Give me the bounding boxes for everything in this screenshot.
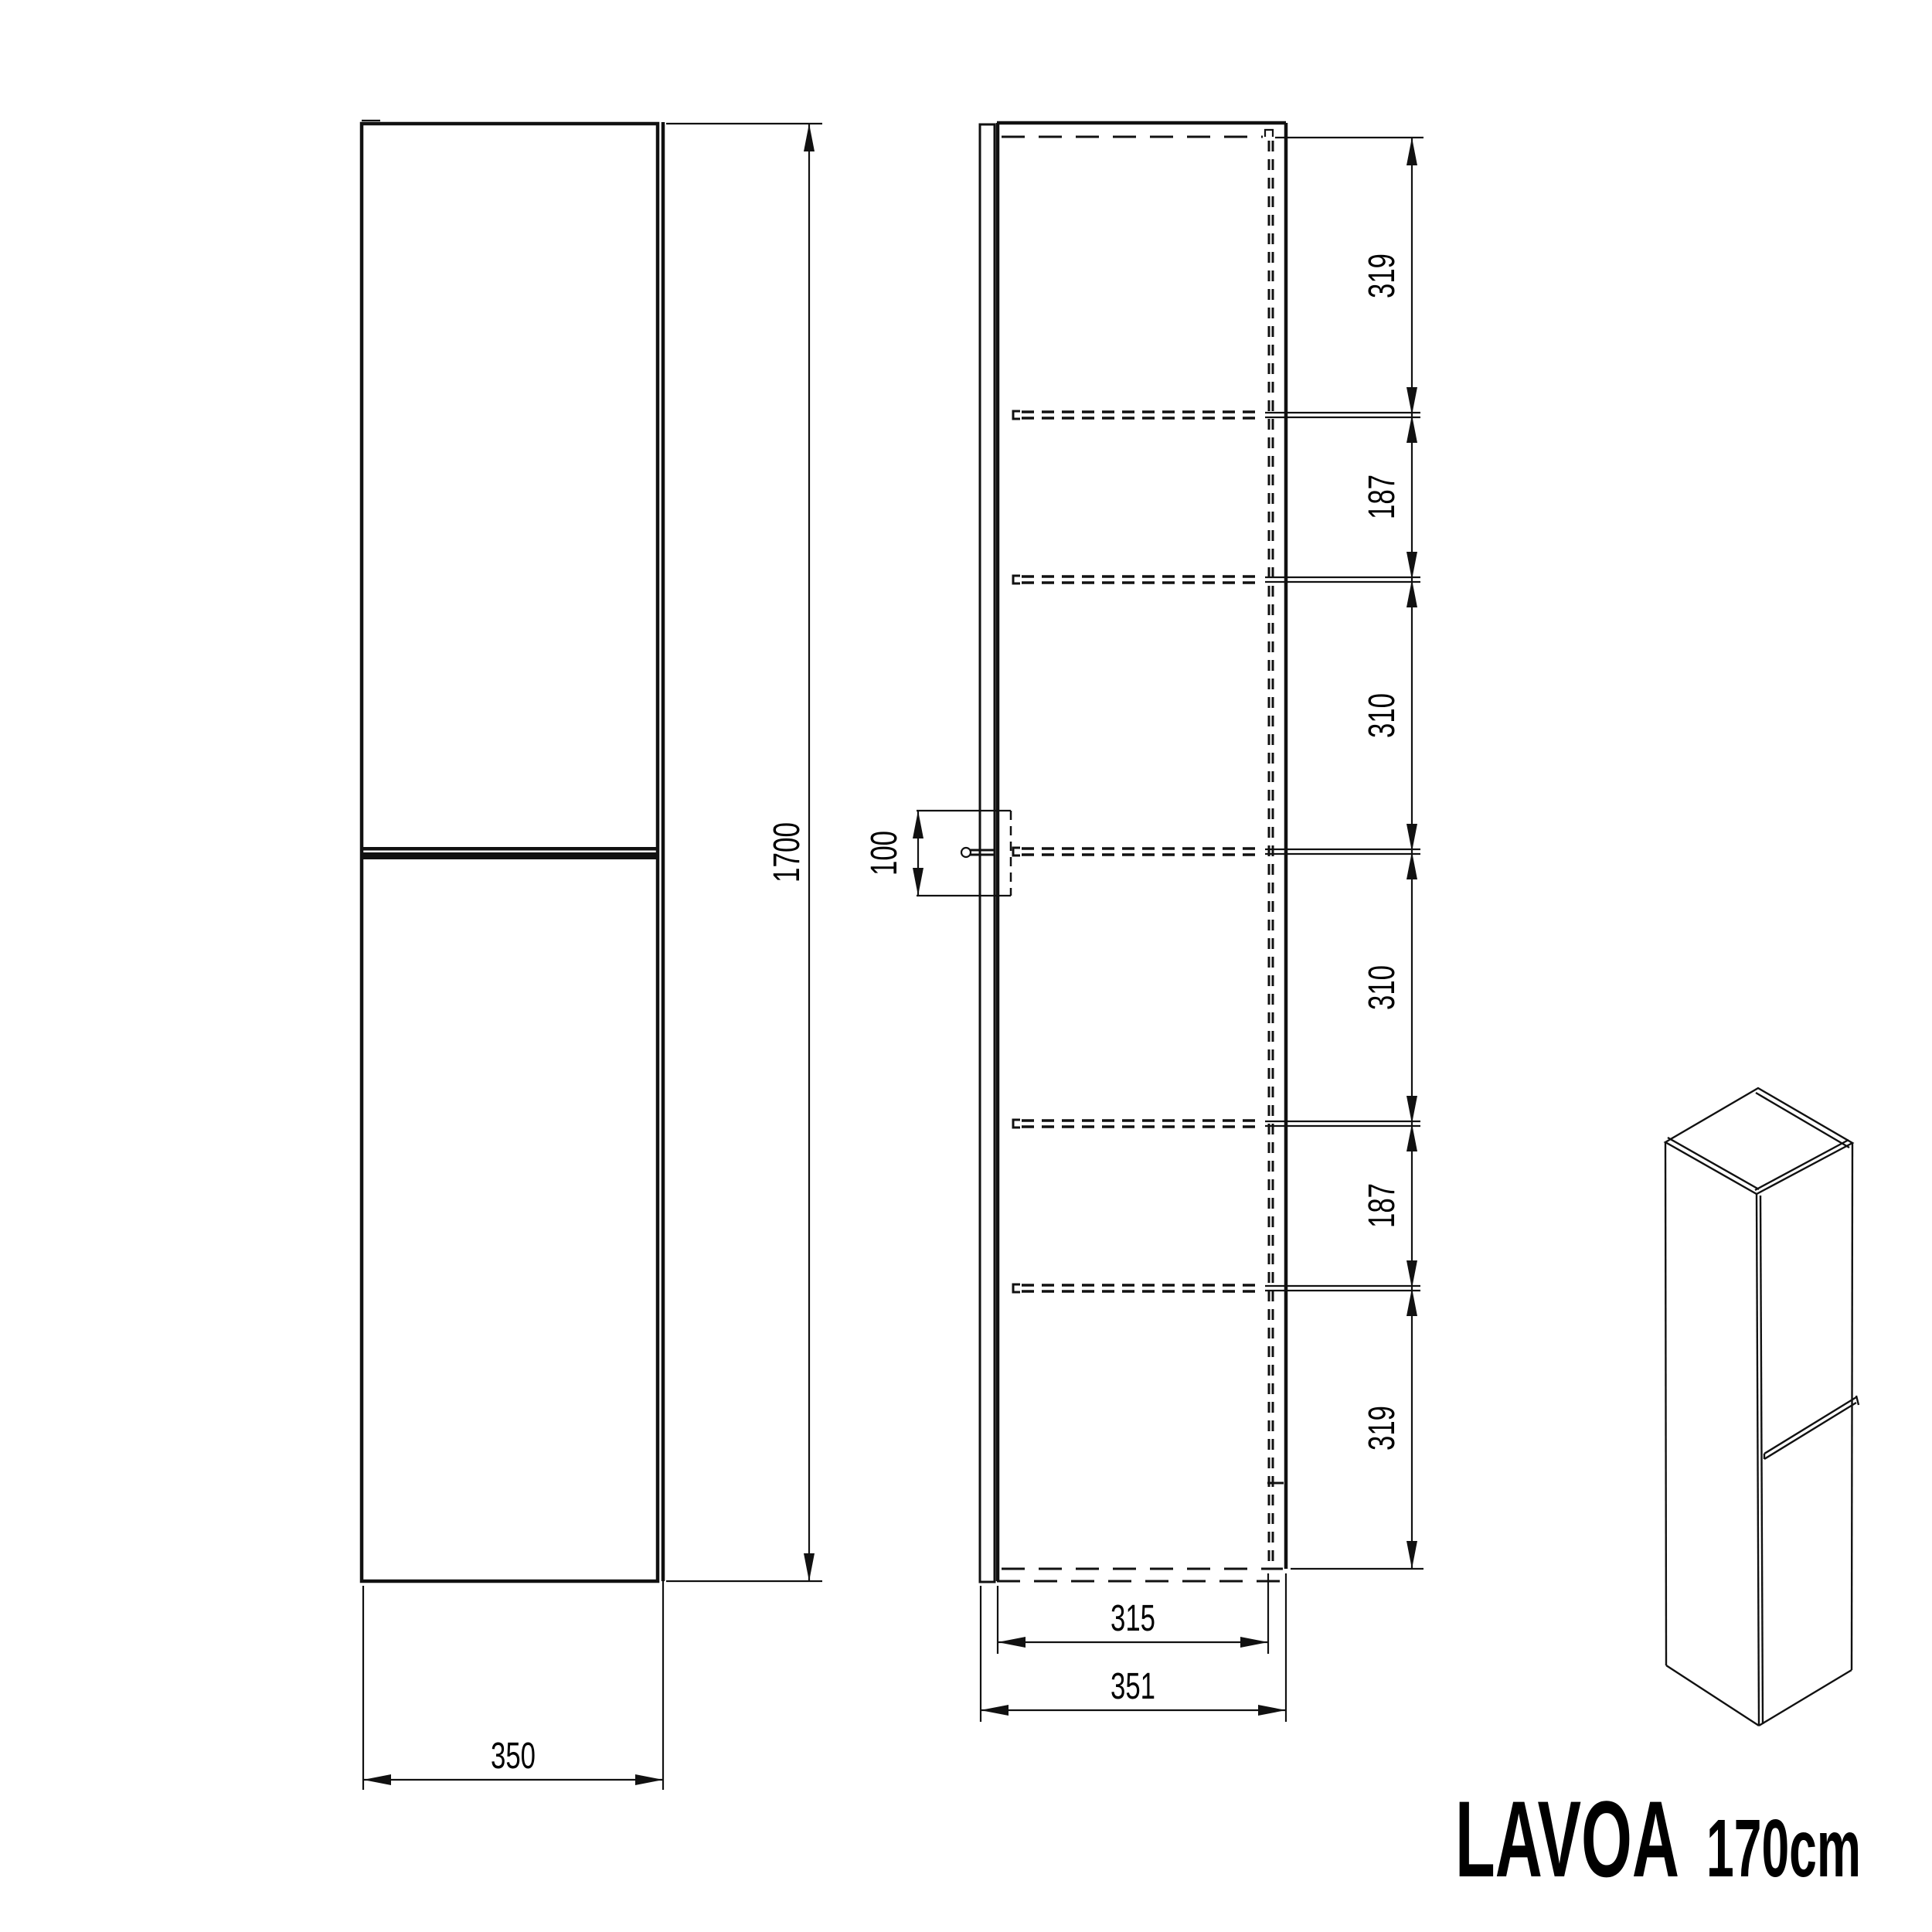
drawing-sheet: 1700 350 xyxy=(0,0,1932,1932)
segment-label-2: 310 xyxy=(1362,693,1403,738)
handle-knob xyxy=(961,848,971,857)
depth-dimension-label: 351 xyxy=(1111,1666,1155,1707)
segment-label-4: 187 xyxy=(1362,1183,1403,1228)
technical-drawing: 1700 350 xyxy=(0,0,1932,1932)
segment-label-5: 319 xyxy=(1362,1406,1403,1451)
shelf-extension-lines xyxy=(1265,413,1420,1291)
segment-label-0: 319 xyxy=(1362,253,1403,298)
inner-width-dimension: 315 xyxy=(998,1573,1268,1654)
depth-dimension: 351 xyxy=(981,1573,1286,1722)
product-title: LAVOA xyxy=(1455,1778,1679,1900)
title-block: LAVOA 170cm xyxy=(1455,1778,1861,1900)
height-dimension: 1700 xyxy=(666,124,822,1581)
height-dimension-label: 1700 xyxy=(767,822,808,883)
width-dimension-label: 350 xyxy=(491,1736,536,1777)
inner-width-dimension-label: 315 xyxy=(1111,1598,1155,1639)
handle-detail: 100 xyxy=(864,811,1011,896)
product-size-label: 170cm xyxy=(1706,1803,1861,1894)
front-elevation-view: 1700 350 xyxy=(362,121,822,1790)
section-door-panel xyxy=(980,124,995,1582)
segment-label-1: 187 xyxy=(1362,474,1403,519)
isometric-view xyxy=(1665,1088,1859,1726)
side-section-view: 100 319 187 310 310 187 319 315 xyxy=(864,123,1423,1722)
shelf-hidden-lines xyxy=(1013,411,1263,1292)
door-gap-edge xyxy=(1757,1194,1759,1726)
isometric-handle xyxy=(1764,1396,1859,1459)
handle-dimension-label: 100 xyxy=(864,831,905,876)
door-divider-handle xyxy=(362,847,659,859)
segment-label-3: 310 xyxy=(1362,965,1403,1010)
width-dimension: 350 xyxy=(363,1581,663,1790)
